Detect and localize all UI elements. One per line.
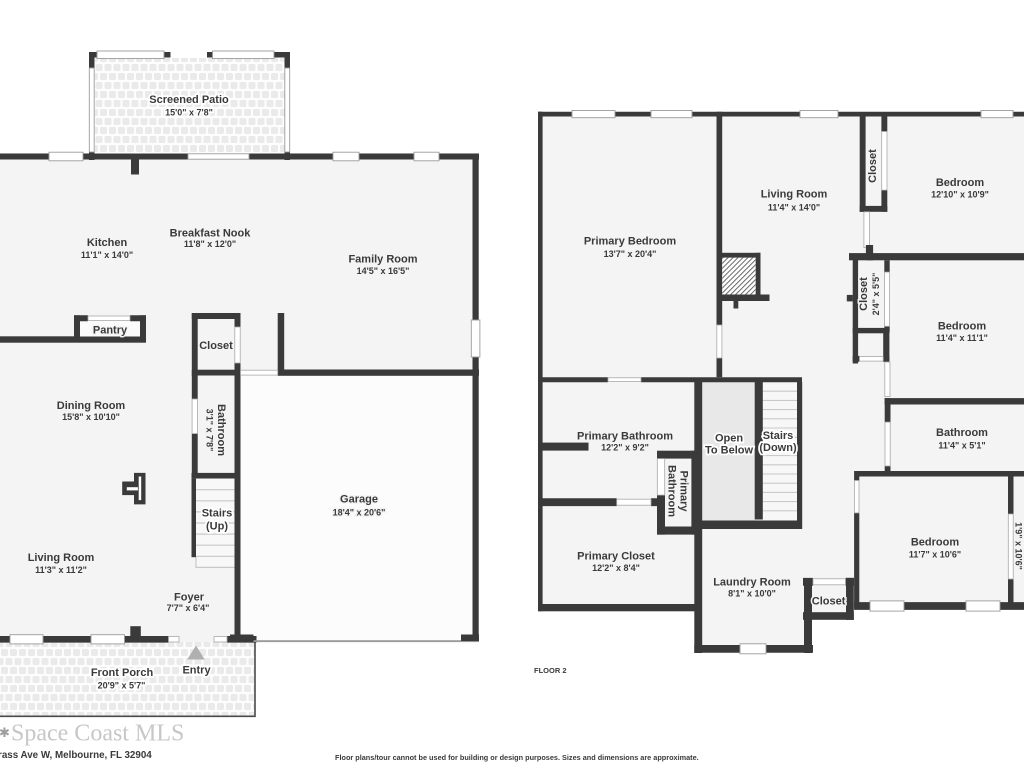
svg-text:Family Room: Family Room	[348, 254, 417, 266]
svg-text:Floor plans/tour cannot be use: Floor plans/tour cannot be used for buil…	[335, 753, 699, 762]
svg-text:rass Ave W, Melbourne, FL 3290: rass Ave W, Melbourne, FL 32904	[0, 750, 152, 761]
svg-text:Front Porch: Front Porch	[91, 667, 154, 679]
svg-text:18'4" x 20'6": 18'4" x 20'6"	[333, 508, 386, 518]
svg-text:Dining Room: Dining Room	[57, 400, 126, 412]
svg-text:Open: Open	[715, 433, 743, 445]
svg-text:Breakfast Nook: Breakfast Nook	[170, 228, 252, 240]
svg-text:Closet: Closet	[867, 149, 879, 183]
svg-text:Stairs: Stairs	[763, 430, 794, 442]
svg-text:11'7" x 10'6": 11'7" x 10'6"	[909, 550, 961, 560]
svg-text:11'4" x 5'1": 11'4" x 5'1"	[938, 441, 985, 451]
svg-text:20'9" x 5'7": 20'9" x 5'7"	[98, 681, 146, 691]
svg-text:Foyer: Foyer	[174, 592, 205, 604]
svg-text:Kitchen: Kitchen	[87, 237, 128, 249]
svg-text:15'0" x 7'8": 15'0" x 7'8"	[165, 108, 213, 118]
svg-text:Space Coast MLS: Space Coast MLS	[11, 721, 184, 747]
svg-text:11'3" x 11'2": 11'3" x 11'2"	[35, 565, 87, 575]
svg-text:11'8" x 12'0": 11'8" x 12'0"	[184, 239, 236, 249]
svg-text:Garage: Garage	[340, 494, 378, 506]
svg-text:Bathroom: Bathroom	[666, 465, 678, 517]
svg-text:Living Room: Living Room	[761, 189, 828, 201]
svg-text:Bedroom: Bedroom	[911, 537, 960, 549]
svg-text:Pantry: Pantry	[93, 325, 128, 337]
svg-text:14'5" x 16'5": 14'5" x 16'5"	[357, 266, 410, 276]
svg-text:Screened Patio: Screened Patio	[149, 94, 229, 106]
svg-text:12'2" x 8'4": 12'2" x 8'4"	[592, 563, 640, 573]
svg-text:Closet: Closet	[858, 277, 870, 311]
svg-text:Stairs: Stairs	[202, 508, 233, 520]
svg-text:15'8" x 10'10": 15'8" x 10'10"	[62, 412, 120, 422]
svg-text:Closet: Closet	[199, 340, 233, 352]
svg-text:12'2" x 9'2": 12'2" x 9'2"	[601, 443, 649, 453]
svg-text:11'1" x 14'0": 11'1" x 14'0"	[81, 250, 133, 260]
svg-text:Primary Bathroom: Primary Bathroom	[577, 431, 673, 443]
svg-text:8'1" x 10'0": 8'1" x 10'0"	[728, 589, 776, 599]
svg-text:Living Room: Living Room	[28, 552, 95, 564]
svg-text:(Down): (Down)	[759, 442, 797, 454]
svg-text:Bedroom: Bedroom	[938, 321, 987, 333]
svg-text:12'10" x 10'9": 12'10" x 10'9"	[931, 190, 989, 200]
svg-text:FLOOR 2: FLOOR 2	[534, 666, 567, 675]
svg-text:(Up): (Up)	[206, 521, 228, 533]
svg-text:✱: ✱	[0, 725, 10, 740]
svg-text:Primary: Primary	[678, 471, 690, 513]
svg-text:Primary Closet: Primary Closet	[577, 551, 655, 563]
svg-text:13'7" x 20'4": 13'7" x 20'4"	[604, 249, 657, 259]
svg-text:Entry: Entry	[182, 665, 211, 677]
svg-text:Closet: Closet	[812, 596, 846, 608]
svg-text:Primary Bedroom: Primary Bedroom	[584, 236, 677, 248]
svg-text:11'4" x 14'0": 11'4" x 14'0"	[768, 203, 820, 213]
svg-text:To Below: To Below	[705, 445, 754, 457]
svg-text:2'4" x 5'5": 2'4" x 5'5"	[871, 273, 881, 316]
svg-text:Bathroom: Bathroom	[215, 404, 227, 456]
svg-text:11'4" x 11'1": 11'4" x 11'1"	[936, 333, 988, 343]
svg-text:Laundry Room: Laundry Room	[713, 577, 791, 589]
svg-text:Bathroom: Bathroom	[936, 427, 988, 439]
svg-text:7'7" x 6'4": 7'7" x 6'4"	[167, 603, 210, 613]
svg-text:1'9" x 10'6": 1'9" x 10'6"	[1014, 522, 1024, 570]
svg-text:Bedroom: Bedroom	[936, 177, 985, 189]
svg-text:3'1" x 7'8": 3'1" x 7'8"	[205, 409, 215, 452]
